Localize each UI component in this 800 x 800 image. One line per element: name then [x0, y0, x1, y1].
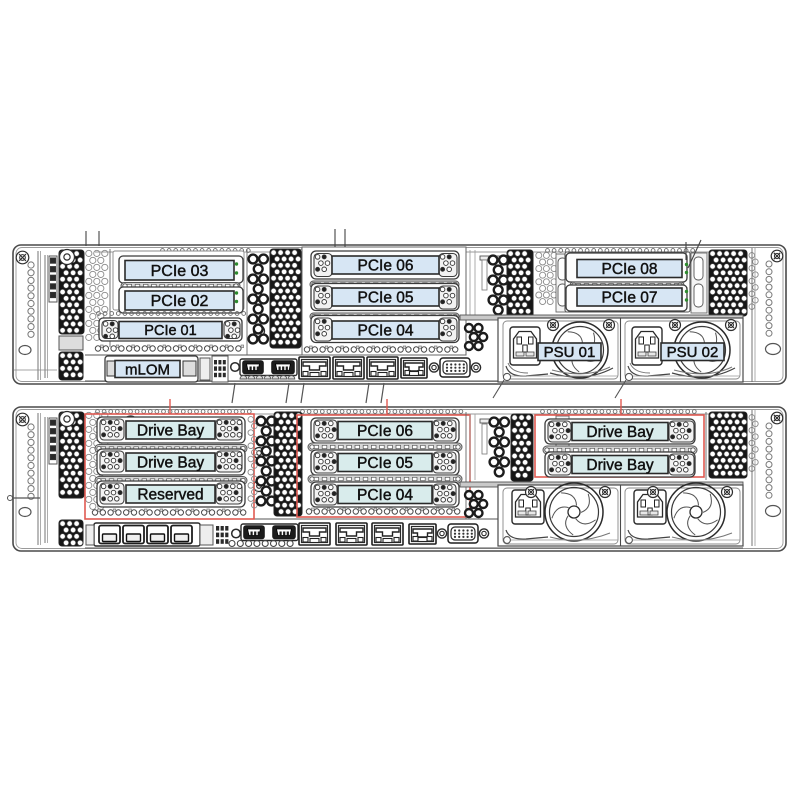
svg-text:PCIe 05: PCIe 05 — [357, 289, 413, 306]
svg-text:PCIe 07: PCIe 07 — [601, 289, 657, 306]
svg-text:PSU 02: PSU 02 — [667, 344, 719, 361]
svg-text:Drive Bay: Drive Bay — [586, 457, 653, 474]
svg-text:Drive Bay: Drive Bay — [137, 454, 204, 471]
svg-text:Drive Bay: Drive Bay — [137, 422, 204, 439]
svg-text:PCIe 06: PCIe 06 — [357, 257, 413, 274]
svg-text:Drive Bay: Drive Bay — [586, 424, 653, 441]
svg-text:mLOM: mLOM — [125, 361, 170, 378]
svg-text:PCIe 08: PCIe 08 — [601, 261, 657, 278]
svg-text:PCIe 02: PCIe 02 — [151, 293, 209, 310]
svg-text:PCIe 03: PCIe 03 — [151, 263, 209, 280]
svg-text:PCIe 05: PCIe 05 — [357, 455, 413, 472]
svg-text:PCIe 06: PCIe 06 — [357, 423, 413, 440]
svg-text:PCIe 04: PCIe 04 — [357, 487, 413, 504]
svg-text:PSU 01: PSU 01 — [544, 344, 596, 361]
svg-text:Reserved: Reserved — [137, 486, 203, 503]
svg-text:PCIe 01: PCIe 01 — [144, 323, 196, 339]
svg-text:PCIe 04: PCIe 04 — [357, 322, 413, 339]
